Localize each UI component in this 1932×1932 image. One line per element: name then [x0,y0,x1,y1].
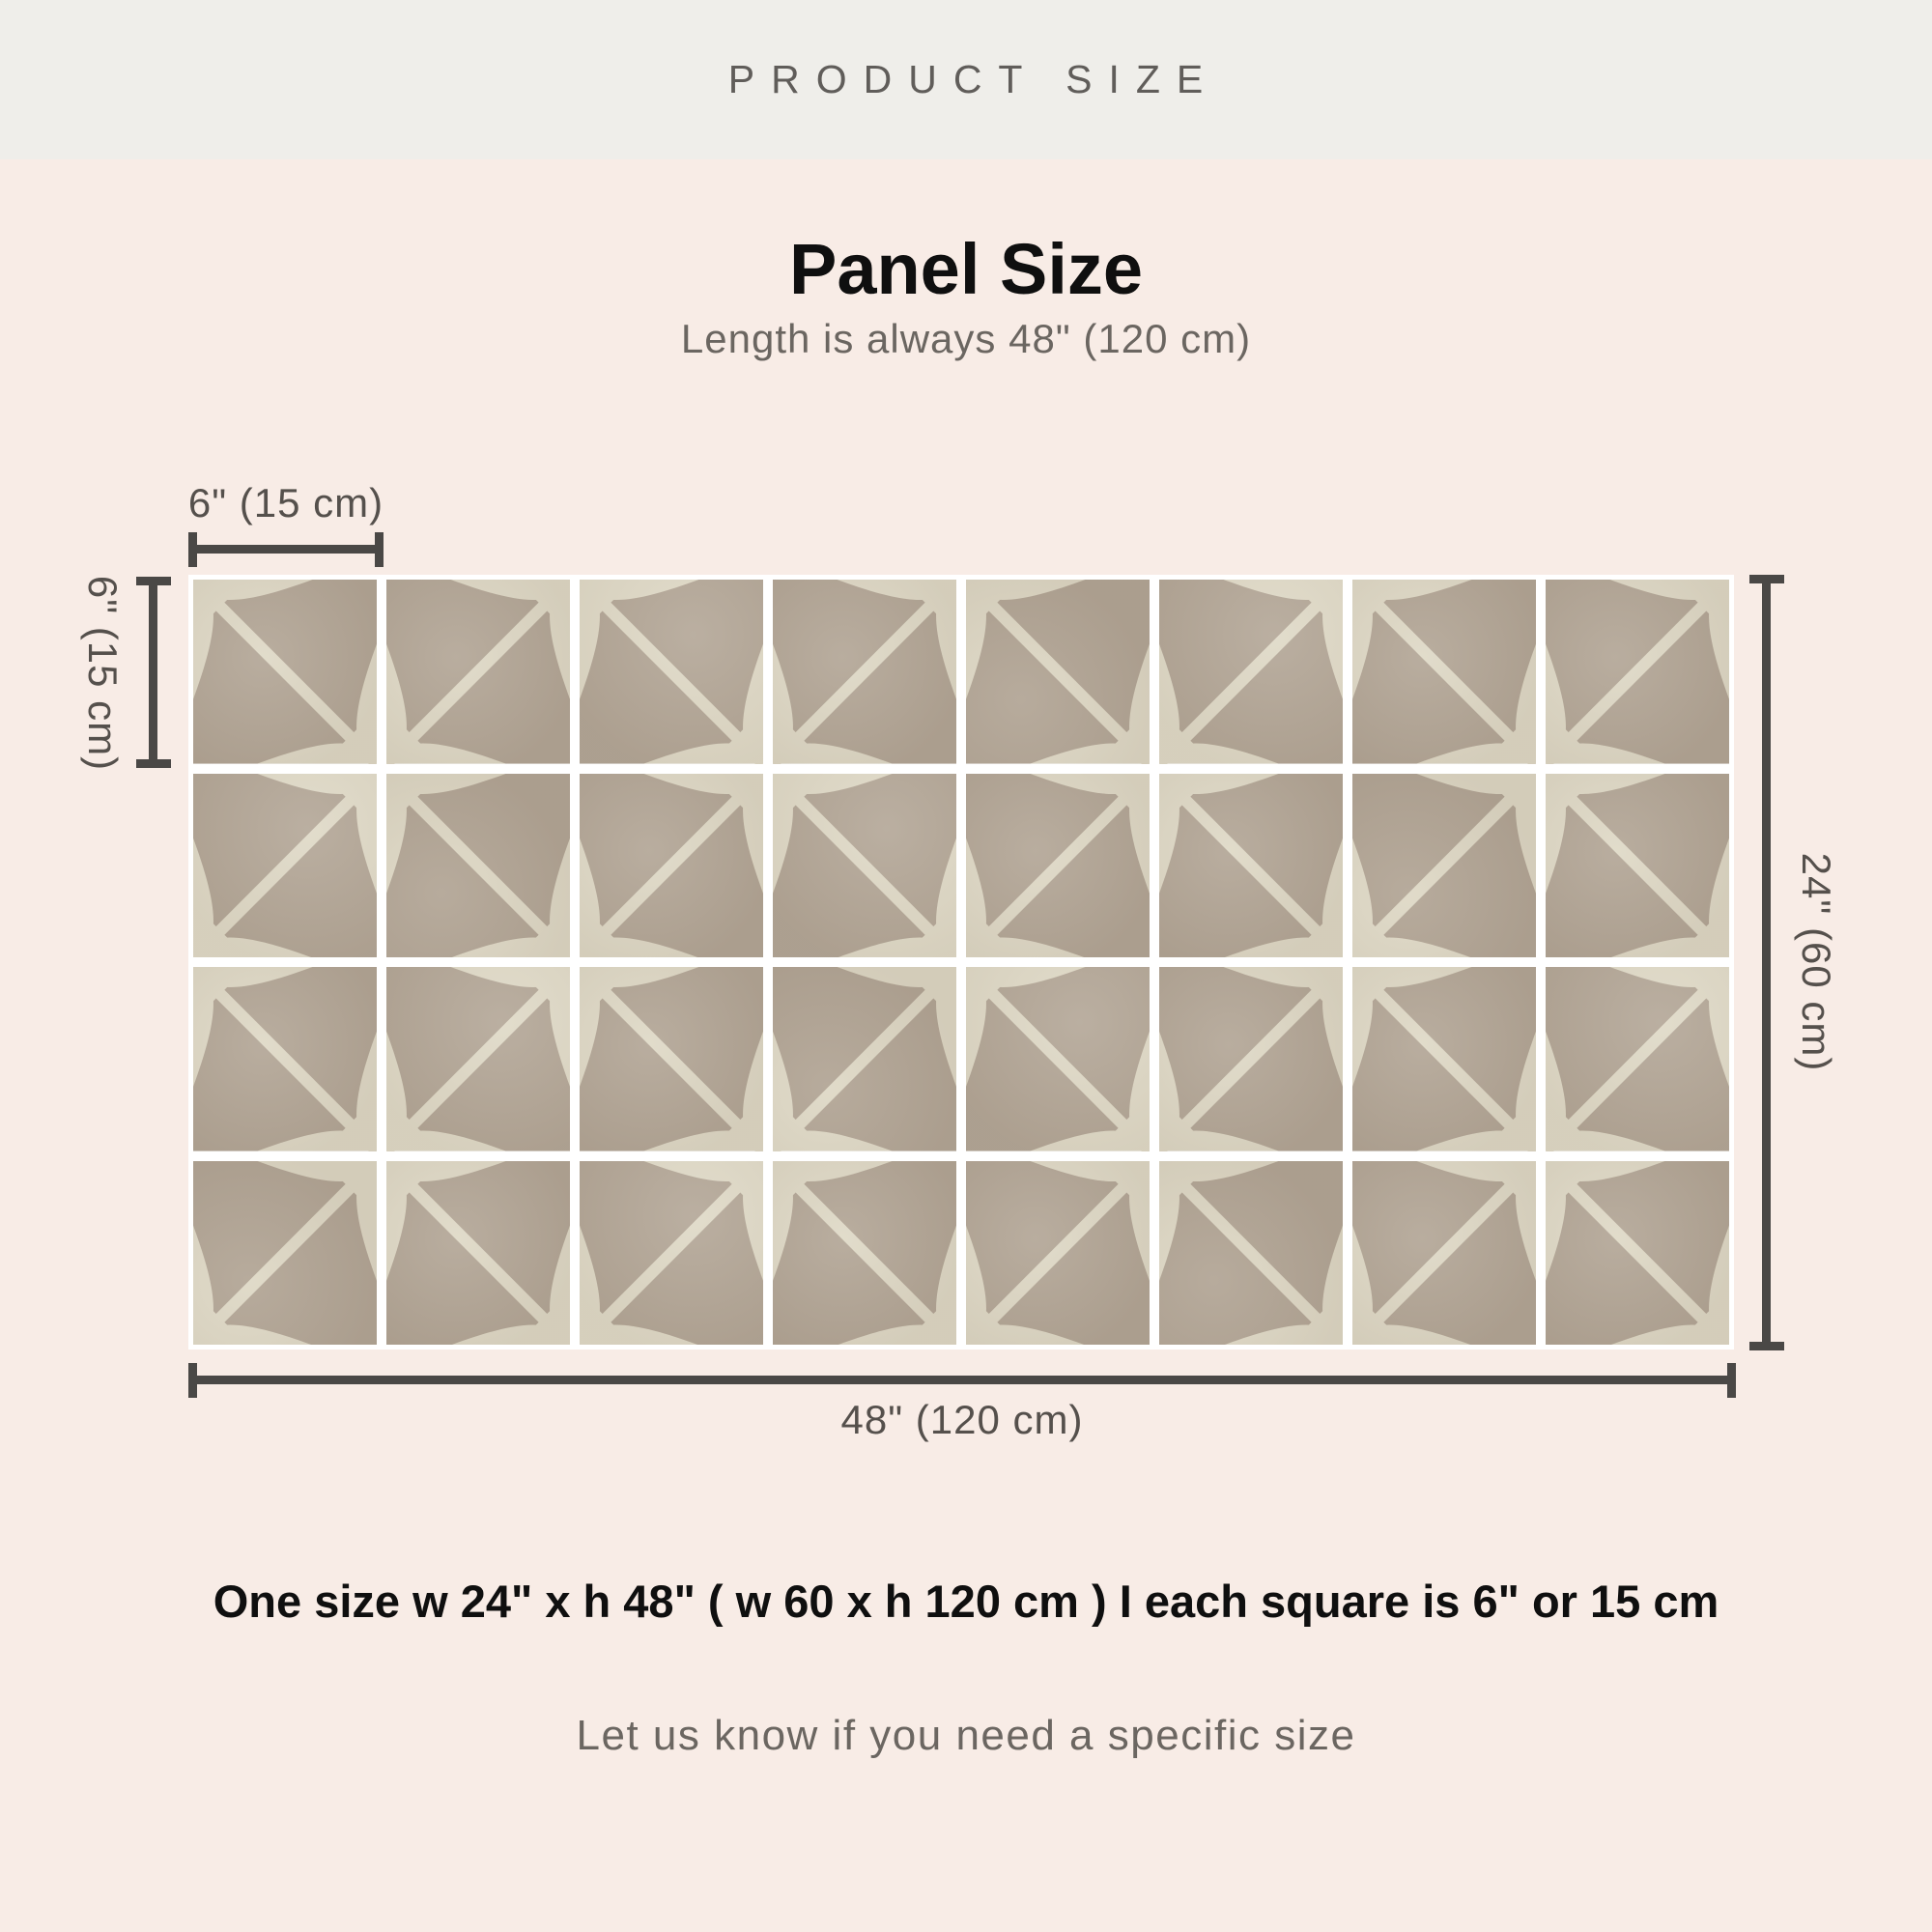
custom-size-note: Let us know if you need a specific size [0,1712,1932,1760]
tile [773,1161,956,1346]
tile [386,967,570,1151]
product-size-infographic: PRODUCT SIZE Panel Size Length is always… [0,0,1932,1932]
tile [773,967,956,1151]
tile [193,580,377,764]
tile [580,580,763,764]
tile-width-label: 6" (15 cm) [188,480,384,526]
tile [193,1161,377,1346]
tile [1352,967,1536,1151]
tile [773,580,956,764]
tile [193,967,377,1151]
tile [1159,1161,1343,1346]
tile [966,967,1150,1151]
tile [1546,774,1729,958]
tile [966,1161,1150,1346]
tile [386,1161,570,1346]
tile [386,580,570,764]
tile [193,774,377,958]
tile [1546,580,1729,764]
panel-size-title: Panel Size [0,228,1932,310]
tile [966,580,1150,764]
tile [386,774,570,958]
tile-height-dimension-line [149,577,157,768]
header-bar: PRODUCT SIZE [0,0,1932,159]
panel-height-dimension-line [1762,575,1771,1350]
panel-width-dimension-line [188,1376,1736,1384]
size-summary-text: One size w 24" x h 48" ( w 60 x h 120 cm… [0,1575,1932,1628]
tile [1546,967,1729,1151]
tile [1159,967,1343,1151]
tile [1352,580,1536,764]
tile [580,774,763,958]
panel-size-subtitle: Length is always 48" (120 cm) [0,316,1932,362]
tile-panel [188,575,1734,1350]
tile [1546,1161,1729,1346]
tile [580,967,763,1151]
tile [1352,1161,1536,1346]
tile [1159,580,1343,764]
tile-height-label: 6" (15 cm) [79,576,126,771]
tile [580,1161,763,1346]
page-title: PRODUCT SIZE [728,57,1220,102]
panel-height-label: 24" (60 cm) [1793,853,1839,1072]
tile [1352,774,1536,958]
tile [966,774,1150,958]
tile [1159,774,1343,958]
tile [773,774,956,958]
panel-width-label: 48" (120 cm) [841,1397,1084,1443]
tile-width-dimension-line [188,545,384,554]
